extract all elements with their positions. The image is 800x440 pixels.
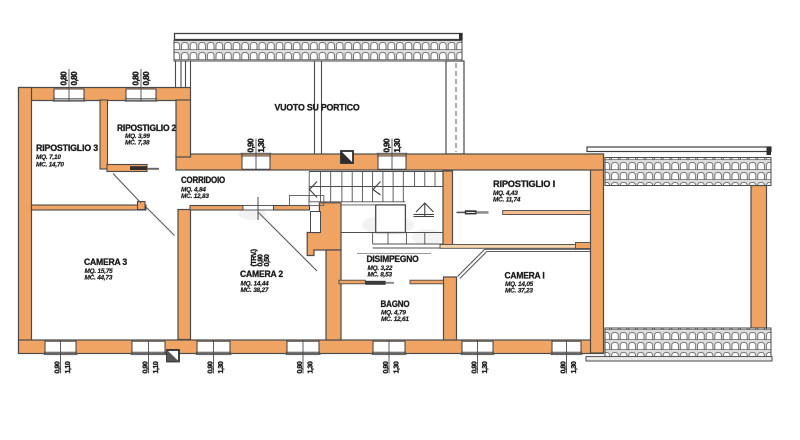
svg-text:DISIMPEGNO: DISIMPEGNO bbox=[367, 254, 419, 264]
svg-text:0,80: 0,80 bbox=[560, 361, 568, 373]
svg-text:0,90: 0,90 bbox=[247, 138, 256, 153]
svg-text:MC. 8,53: MC. 8,53 bbox=[368, 272, 393, 279]
svg-text:0,80: 0,80 bbox=[60, 71, 69, 86]
svg-text:CORRIDOIO: CORRIDOIO bbox=[181, 175, 225, 185]
svg-text:1,30: 1,30 bbox=[393, 361, 401, 373]
svg-text:RIPOSTIGLIO 2: RIPOSTIGLIO 2 bbox=[117, 123, 176, 133]
svg-text:1,10: 1,10 bbox=[152, 361, 160, 373]
svg-text:MC. 37,23: MC. 37,23 bbox=[505, 288, 533, 295]
svg-text:MC. 14,70: MC. 14,70 bbox=[36, 162, 64, 169]
svg-text:1,30: 1,30 bbox=[570, 361, 578, 373]
svg-text:1,30: 1,30 bbox=[393, 138, 402, 153]
svg-text:0,80: 0,80 bbox=[132, 71, 141, 86]
svg-text:MQ. 7,10: MQ. 7,10 bbox=[36, 154, 61, 161]
svg-text:MC. 12,83: MC. 12,83 bbox=[181, 193, 209, 200]
svg-text:0,90: 0,90 bbox=[54, 361, 62, 373]
svg-text:RIPOSTIGLIO I: RIPOSTIGLIO I bbox=[493, 179, 555, 189]
svg-text:CAMERA 2: CAMERA 2 bbox=[240, 269, 283, 279]
svg-text:1,30: 1,30 bbox=[481, 361, 489, 373]
svg-text:1,30: 1,30 bbox=[217, 361, 225, 373]
svg-text:0,90: 0,90 bbox=[207, 361, 215, 373]
svg-text:0,90: 0,90 bbox=[142, 361, 150, 373]
svg-text:RIPOSTIGLIO 3: RIPOSTIGLIO 3 bbox=[36, 143, 98, 153]
svg-text:MC. 12,61: MC. 12,61 bbox=[381, 316, 409, 323]
svg-text:1,30: 1,30 bbox=[307, 361, 315, 373]
svg-text:MC. 38,27: MC. 38,27 bbox=[241, 287, 269, 294]
svg-text:MC. 44,73: MC. 44,73 bbox=[85, 275, 113, 282]
svg-text:CAMERA 3: CAMERA 3 bbox=[84, 257, 127, 267]
svg-text:0,90: 0,90 bbox=[382, 361, 390, 373]
svg-text:1,30: 1,30 bbox=[257, 138, 266, 153]
svg-text:0,90: 0,90 bbox=[383, 138, 392, 153]
svg-text:CAMERA I: CAMERA I bbox=[505, 271, 545, 281]
svg-text:0,50: 0,50 bbox=[263, 254, 271, 266]
svg-text:MC. 11,74: MC. 11,74 bbox=[493, 197, 521, 204]
svg-text:MC. 7,38: MC. 7,38 bbox=[125, 140, 150, 147]
svg-text:0,80: 0,80 bbox=[142, 71, 151, 86]
svg-text:0,90: 0,90 bbox=[296, 361, 304, 373]
svg-text:VUOTO SU PORTICO: VUOTO SU PORTICO bbox=[275, 103, 360, 113]
svg-text:0,90: 0,90 bbox=[471, 361, 479, 373]
svg-text:0,80: 0,80 bbox=[70, 71, 79, 86]
svg-text:1,10: 1,10 bbox=[64, 361, 72, 373]
svg-text:BAGNO: BAGNO bbox=[381, 299, 410, 309]
